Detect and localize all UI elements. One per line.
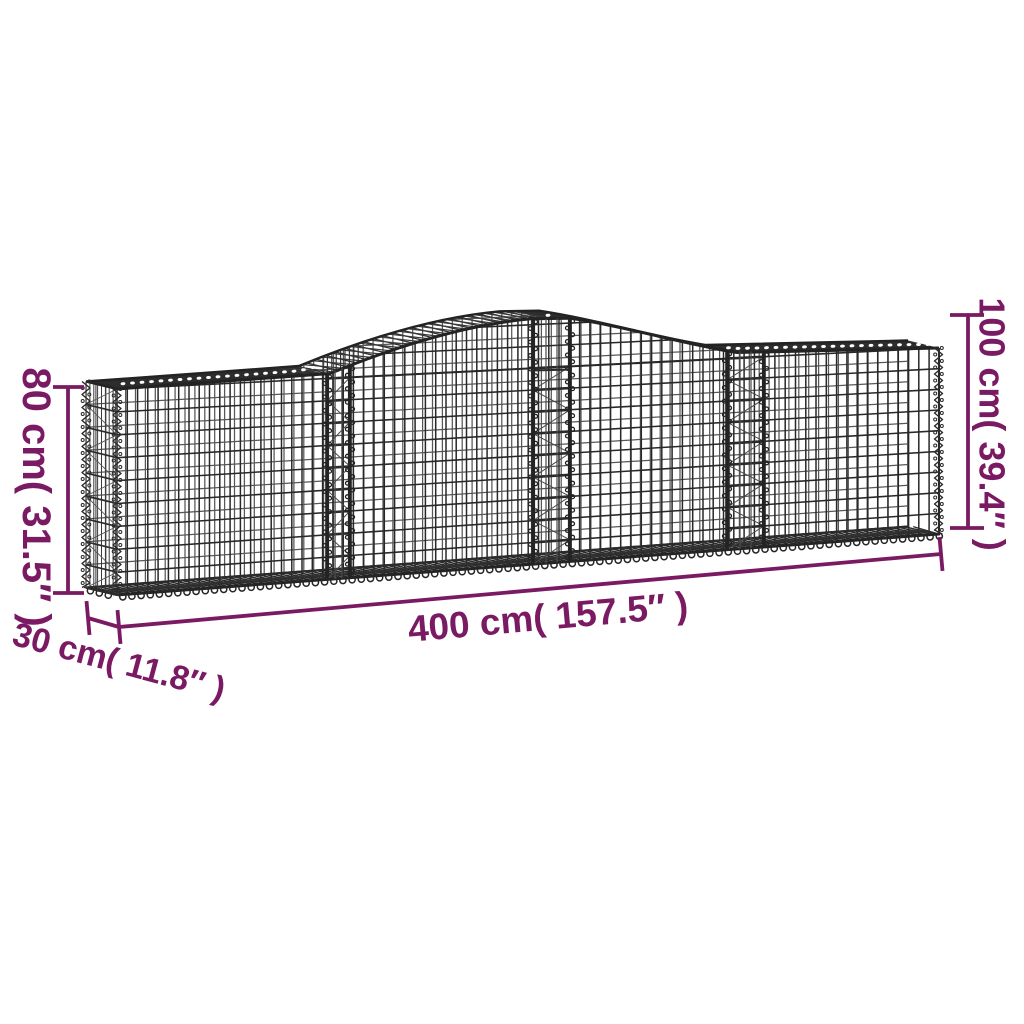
svg-text:80 cm( 31.5″ ): 80 cm( 31.5″ ) [14, 367, 58, 626]
svg-text:100 cm( 39.4″ ): 100 cm( 39.4″ ) [972, 297, 1013, 550]
